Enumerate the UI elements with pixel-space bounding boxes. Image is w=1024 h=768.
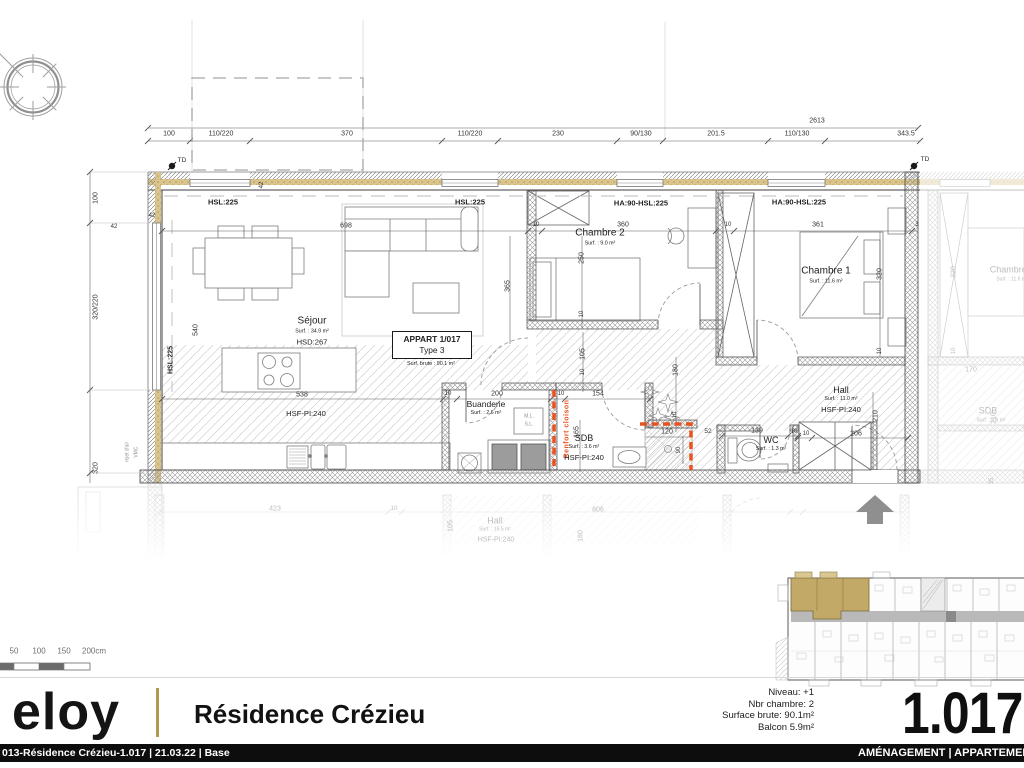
info-bedrooms: Nbr chambre: 2 [722,699,814,711]
company-logo: eloy [12,682,120,742]
info-level: Niveau: +1 [722,687,814,699]
logo-divider [156,688,159,737]
apartment-info: Niveau: +1 Nbr chambre: 2 Surface brute:… [722,687,814,733]
apartment-gross-area: Surf. brute : 90.1 m² [407,361,455,367]
balcony-outline [192,78,363,170]
td-markers [168,162,918,170]
axis-lines [192,20,665,172]
footer-bar: 013-Résidence Crézieu-1.017 | 21.03.22 |… [0,744,1024,762]
sheet: { "colors": { "accent_red": "#e8521f", "… [0,0,1024,768]
neighbour-lower [78,483,909,560]
plan-number: 1.017 [902,680,1023,747]
project-title: Résidence Crézieu [194,699,425,730]
drawing-reference: 013-Résidence Crézieu-1.017 | 21.03.22 |… [2,744,230,762]
compass-icon [0,53,66,120]
neighbour-right [918,172,1024,483]
scale-bar [0,663,90,670]
drawing-category: AMÉNAGEMENT | APPARTEMENT [858,744,1024,762]
apartment-id: APPART 1/017 [393,334,471,344]
titleblock-divider [0,677,1024,678]
floor-plan [0,0,1024,690]
info-gross-surface: Surface brute: 90.1m² [722,710,814,722]
info-balcony: Balcon 5.9m² [722,722,814,734]
apartment-type: Type 3 [393,345,471,355]
entrance-arrow-icon [856,495,894,524]
apartment-id-box: APPART 1/017 Type 3 [392,331,472,359]
keyplan [776,572,1024,686]
